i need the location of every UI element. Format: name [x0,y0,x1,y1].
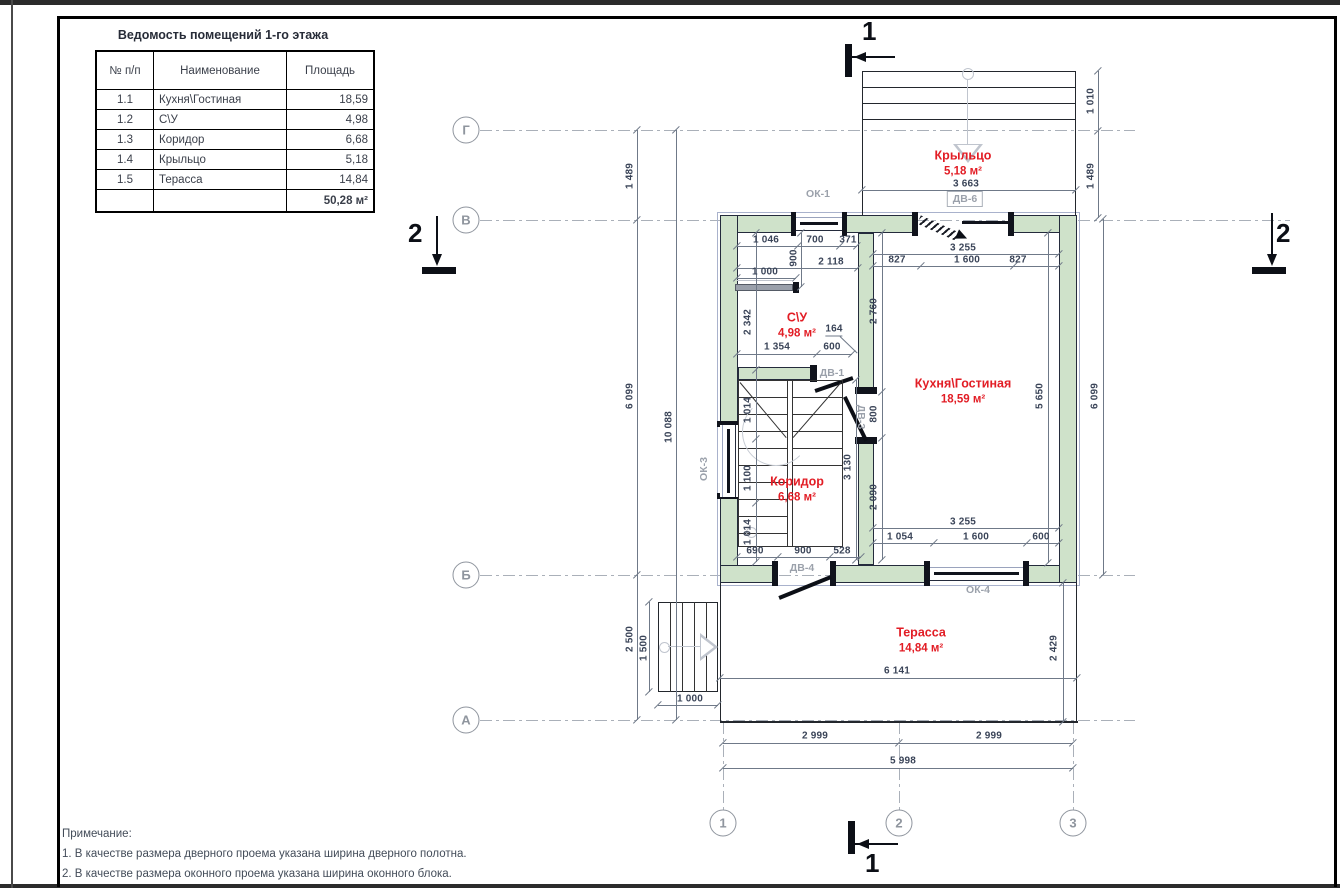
grid-bubble: 2 [886,810,913,837]
room-label: Терасса14,84 м² [896,626,946,655]
floor-plan-sheet: Ведомость помещений 1-го этажа № п/пНаим… [0,0,1340,888]
window-frame-line [800,222,838,225]
room-label: Коридор6,68 м² [770,475,824,504]
room-label: Кухня\Гостиная18,59 м² [915,377,1012,406]
section-number: 2 [1276,220,1290,246]
room-area: 5,18 м² [935,166,992,178]
room-name: Коридор [770,475,824,489]
dimension-line [1048,233,1049,563]
opening-tag: ДВ-3 [855,405,867,429]
dimension-label: 1 354 [764,342,790,353]
dimension-label: 827 [888,255,905,266]
room-name: Крыльцо [935,149,992,163]
porch-step-line [862,103,1076,104]
section-number: 1 [862,18,876,44]
dimension-line [737,354,852,355]
dimension-line [1098,71,1099,218]
dimension-line [676,130,677,720]
wall-segment [720,565,778,583]
room-label: С\У4,98 м² [778,311,816,340]
room-area: 4,98 м² [778,328,816,340]
dimension-label: 1 600 [954,255,980,266]
dimension-label: 1 000 [752,267,778,278]
dimension-line [1063,583,1064,722]
dimension-label: 1 010 [1086,88,1097,114]
stair-tread [793,397,843,398]
dimension-label: 600 [823,342,840,353]
partition-wall [735,284,793,291]
dimension-label: 3 255 [950,517,976,528]
window-outer-line [722,425,723,497]
wall-segment [738,367,813,380]
porch-step-line [862,119,1076,120]
dimension-label: 528 [833,546,850,557]
section-number: 2 [408,220,422,246]
dimension-label: 900 [794,546,811,557]
dimension-label: 1 014 [743,397,754,423]
section-cut-bar [848,821,855,854]
dimension-label: 6 141 [884,666,910,677]
dimension-line [1103,219,1104,575]
dimension-line [720,678,1077,679]
grid-bubble: 1 [710,810,737,837]
porch-arrow-line [967,79,968,144]
stair-tread [793,465,843,466]
window-outer-line [930,567,1023,568]
section-cut-bar [845,44,852,77]
dimension-label: 2 118 [818,257,843,268]
section-cut-bar [422,267,456,274]
dimension-tick [645,688,653,696]
stair-tread [738,516,787,517]
dimension-label: 1 100 [743,465,754,491]
note-line-1: 1. В качестве размера дверного проема ук… [62,844,467,864]
dimension-label: 600 [1032,532,1049,543]
grid-bubble: Б [453,562,480,589]
dimension-label: 10 088 [664,411,675,443]
opening-jamb-cap [842,212,847,236]
dimension-label: 1 054 [887,532,913,543]
window-outer-line [796,217,842,218]
opening-tag: ОК-3 [698,457,710,481]
dimension-label: 2 429 [1049,635,1060,661]
room-area: 18,59 м² [915,394,1012,406]
dimension-label: 1 500 [639,635,650,661]
floor-plan-canvas: 1 0467003719002 1181 0003 2558271 600827… [0,0,1340,888]
window-inner-line [930,580,1023,581]
opening-tag: ДВ-4 [790,562,814,574]
section-arrow-icon [1267,254,1277,266]
dimension-label: 6 099 [625,383,636,409]
steps-arrow-circle-icon [659,642,670,653]
dimension-label: 2 760 [869,298,880,324]
dimension-label: 690 [746,546,763,557]
section-cut-line [1271,213,1273,256]
wall-segment [830,565,930,583]
section-cut-line [436,216,438,256]
grid-bubble: 3 [1060,810,1087,837]
grid-bubble: Г [453,117,480,144]
dimension-line [723,768,1073,769]
grid-bubble: А [453,707,480,734]
dimension-label: 2 999 [802,731,828,742]
opening-jamb-cap [830,561,836,586]
room-area: 14,84 м² [896,643,946,655]
section-cut-bar [1252,267,1286,274]
dimension-label: 1 600 [963,532,989,543]
opening-jamb-cap [1008,212,1014,236]
porch-step-line [862,87,1076,88]
grid-bubble: В [453,207,480,234]
dimension-label: 371 [839,235,856,246]
dimension-line [873,266,1059,267]
opening-tag: ДВ-6 [947,191,983,207]
dimension-label: 1 000 [677,694,703,705]
dimension-label: 1 014 [743,519,754,545]
dimension-line [658,705,718,706]
opening-tag: ДВ-1 [820,367,844,379]
dimension-label: 2 999 [976,731,1002,742]
wall-segment [843,215,917,233]
door-leaf [962,221,1008,224]
terrace-edge [720,721,1078,723]
terrace-edge [1076,583,1077,722]
notes-block: Примечание: 1. В качестве размера дверно… [62,824,467,884]
dimension-label: 5 998 [890,756,916,767]
room-area: 6,68 м² [770,492,824,504]
steps-arrow-line [668,646,700,647]
room-name: Терасса [896,626,946,640]
opening-jamb-cap [772,561,778,586]
dimension-label: 2 342 [743,309,754,335]
closet-line [737,280,792,281]
dimension-label: 3 663 [953,179,979,190]
dimension-label: 1 489 [1086,163,1097,189]
opening-jamb-cap [1023,561,1029,586]
dimension-label: 164 [825,324,842,337]
room-label: Крыльцо5,18 м² [935,149,992,178]
opening-tag: ОК-4 [966,584,990,596]
dimension-label: 3 130 [843,454,854,480]
section-arrow-icon [854,52,866,62]
dimension-label: 2 500 [625,626,636,652]
dimension-line [873,543,1059,544]
dimension-label: 1 489 [625,163,636,189]
dimension-line [873,528,1059,529]
window-inner-line [735,425,736,497]
dimension-label: 1 046 [753,235,779,246]
wall-segment [1059,215,1077,583]
dimension-label: 827 [1009,255,1026,266]
note-line-2: 2. В качестве размера оконного проема ук… [62,864,467,884]
opening-jamb-cap [855,387,877,394]
notes-title: Примечание: [62,824,467,844]
section-number: 1 [865,850,879,876]
room-name: Кухня\Гостиная [915,377,1012,391]
dimension-label: 800 [869,405,880,422]
dimension-label: 700 [806,235,823,246]
dimension-line [882,233,883,560]
dimension-label: 900 [789,249,800,266]
dimension-label: 5 650 [1035,383,1046,409]
dimension-label: 2 090 [869,484,880,510]
dimension-label: 6 099 [1090,383,1101,409]
dimension-line [756,233,757,562]
dimension-label: 3 255 [950,243,976,254]
window-frame-line [934,572,1019,575]
window-frame-line [727,429,730,493]
dimension-line [737,278,796,279]
room-name: С\У [778,311,816,325]
steps-arrow-right-icon [700,633,718,661]
section-arrow-icon [432,254,442,266]
opening-tag: ОК-1 [806,188,830,200]
